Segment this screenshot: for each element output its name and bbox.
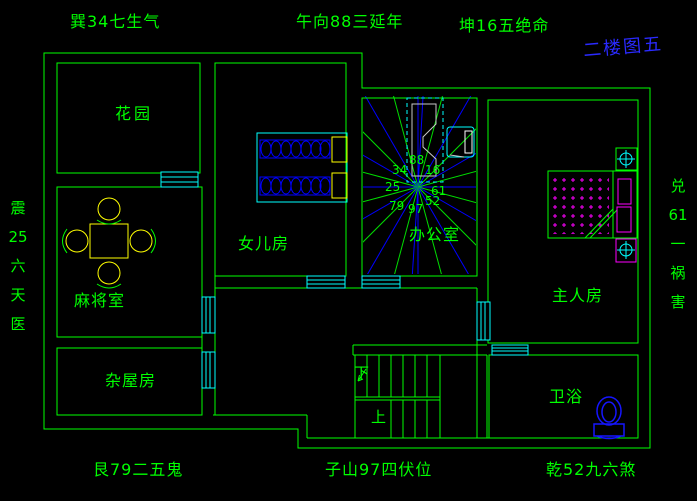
lamp-bottom [616,239,636,262]
door-mahjong [202,297,215,333]
mahjong-table-set [63,198,156,288]
label-direction-bottom: 子山97四伏位 [325,461,432,479]
star-number-bottom: 97 [408,203,423,215]
star-number-bottomleft: 79 [389,200,404,212]
label-room-master: 主人房 [552,287,603,305]
lamp-fixtures [616,148,637,262]
label-room-office: 办公室 [409,226,460,244]
star-number-left: 25 [385,181,400,193]
cad-floorplan-canvas[interactable]: 巽34七生气 午向88三延年 坤16五绝命 二楼图五 震25六天医 兑61一祸害… [0,0,697,501]
label-direction-right: 兑61一祸害 [668,172,688,317]
label-room-storage: 杂屋房 [105,372,156,390]
star-number-bottomright: 52 [425,195,440,207]
door-storage [202,352,215,388]
star-number-topleft: 34 [392,164,407,176]
office-fixtures [407,98,474,182]
label-stairs-up: 上 [371,409,387,426]
lamp-top [616,148,637,170]
master-bed [548,171,637,238]
door-corridor [477,302,490,340]
label-direction-top: 午向88三延年 [296,13,403,31]
label-room-daughter: 女儿房 [238,235,289,253]
label-direction-bottomleft: 艮79二五鬼 [93,461,183,479]
label-room-mahjong: 麻将室 [74,292,125,310]
label-direction-bottomright: 乾52九六煞 [546,461,636,479]
window-garden [161,172,198,187]
window-master [492,345,528,355]
star-number-top: 88 [409,154,424,166]
label-room-bath: 卫浴 [549,388,583,406]
windows-and-doors [161,172,528,388]
label-direction-topright: 坤16五绝命 [459,17,549,35]
label-direction-topleft: 巽34七生气 [70,13,160,31]
toilet [594,397,624,439]
floorplan-drawing [0,0,697,501]
daughter-beds [257,133,347,202]
appliance-box [447,127,474,157]
star-number-topright: 16 [425,164,440,176]
label-room-garden: 花园 [115,105,153,123]
label-direction-left: 震25六天医 [8,194,28,339]
window-daughter [307,276,345,288]
label-stairs-down: 下 [354,365,370,382]
window-office [362,276,400,288]
